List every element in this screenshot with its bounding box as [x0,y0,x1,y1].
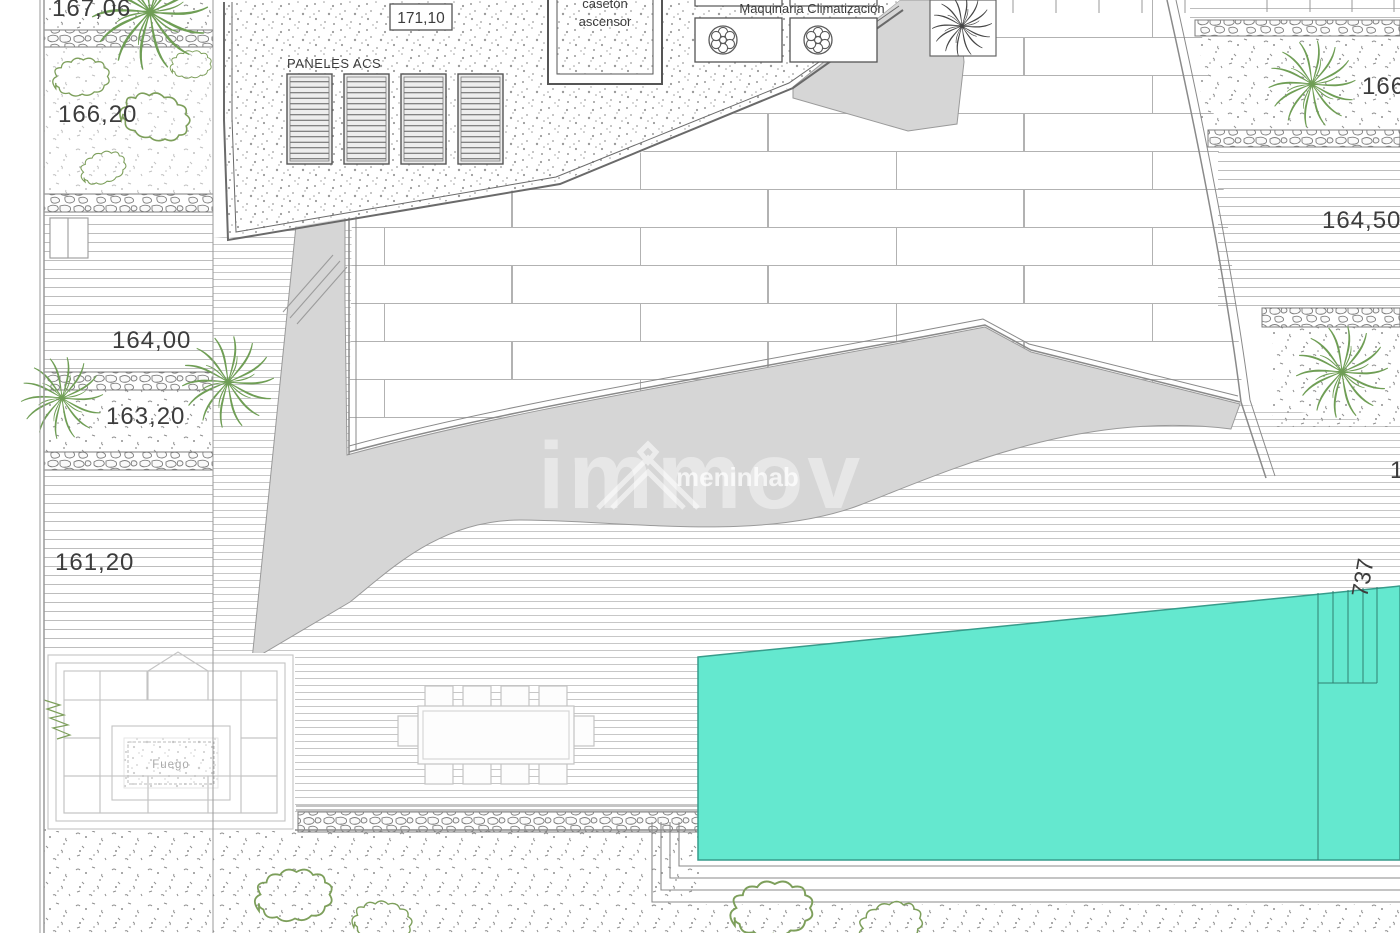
fire-pit-label: Fuego [152,759,190,771]
elevation-label-164-00: 164,00 [112,327,191,354]
elevation-label-167-06: 167,06 [52,0,131,22]
elevation-label-164-50: 164,50 [1322,207,1400,234]
hvac-label: Maquinaria Climatización [739,1,884,16]
elevation-label-partial-right: 1 [1390,457,1400,484]
roof-level-tag: 171,10 [390,4,452,30]
fan-icon [804,26,832,54]
elevator-housing: casetón ascensor [548,0,662,84]
site-plan-drawing: 171,10 PANELES ACS [0,0,1400,933]
elevator-label-line2: ascensor [579,14,632,29]
site-plan-page: 171,10 PANELES ACS [0,0,1400,933]
elevator-label-line1: casetón [582,0,628,11]
watermark: immov meninhab [538,423,864,529]
watermark-sub: meninhab [676,462,799,492]
elevation-label-161-20: 161,20 [55,549,134,576]
solar-panel [401,74,446,164]
elevation-label-163-20: 163,20 [106,403,185,430]
dark-tree-planter [930,0,996,56]
solar-panels-label: PANELES ACS [287,56,381,71]
fire-pit: Fuego [124,738,218,788]
fire-pit-lounge: Fuego [46,652,295,831]
roof-level-label: 171,10 [397,10,445,27]
fan-icon [709,26,737,54]
elevation-label-166-20: 166,20 [58,101,137,128]
solar-panel [458,74,503,164]
garden-step-box [50,218,88,258]
solar-panel [344,74,389,164]
elevation-label-166-right: 166 [1362,73,1400,100]
solar-panel [287,74,332,164]
